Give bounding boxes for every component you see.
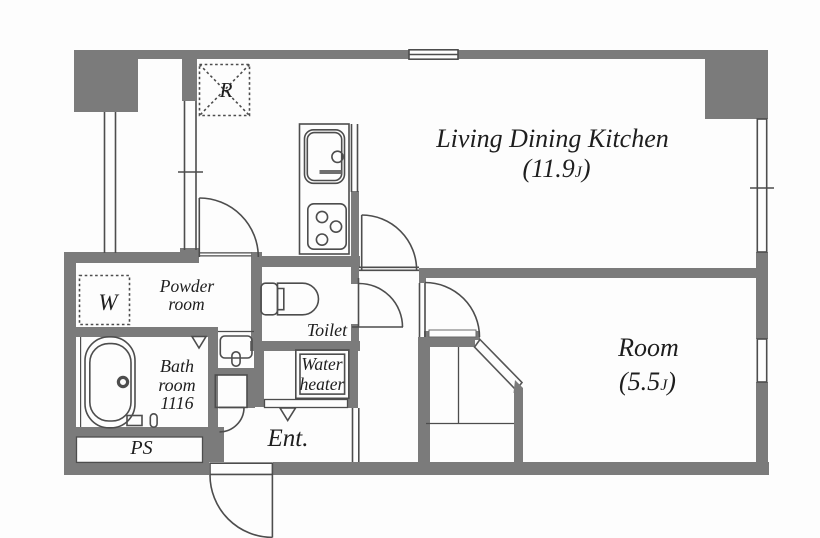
svg-text:R: R	[219, 78, 233, 102]
svg-text:W: W	[98, 290, 119, 315]
svg-text:PS: PS	[129, 437, 152, 459]
svg-text:Room: Room	[617, 333, 679, 362]
svg-text:Bathroom1116: Bathroom1116	[158, 356, 195, 413]
svg-text:(5.5J): (5.5J)	[619, 367, 676, 396]
svg-text:Waterheater: Waterheater	[300, 354, 345, 394]
svg-text:Ent.: Ent.	[267, 425, 309, 452]
svg-text:Toilet: Toilet	[307, 320, 348, 340]
svg-text:Living Dining Kitchen: Living Dining Kitchen	[435, 124, 669, 153]
